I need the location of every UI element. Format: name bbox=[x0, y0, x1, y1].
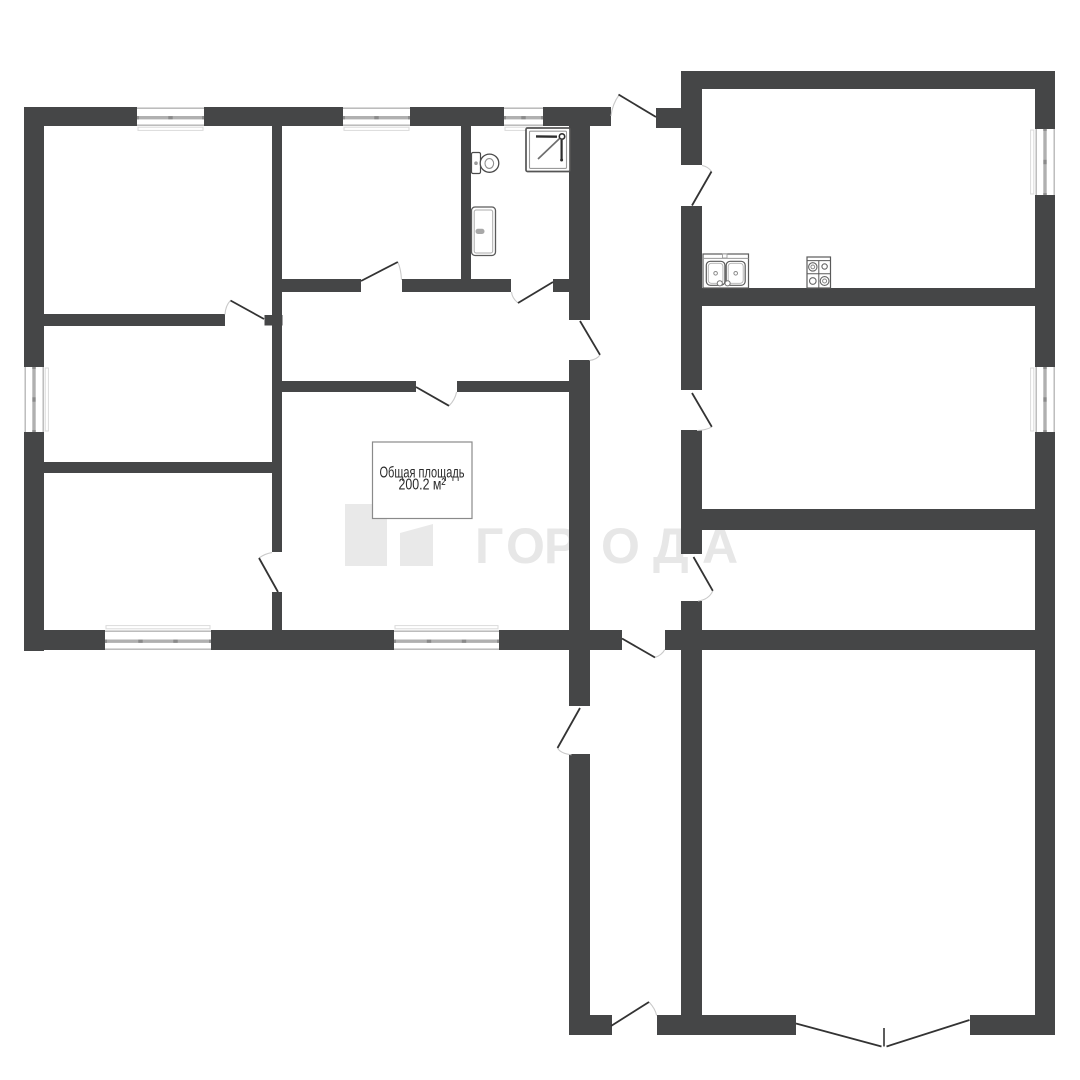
svg-text:Г: Г bbox=[475, 518, 503, 574]
svg-text:200.2 м²: 200.2 м² bbox=[399, 477, 447, 494]
svg-text:О: О bbox=[601, 518, 640, 574]
svg-text:О: О bbox=[506, 518, 545, 574]
